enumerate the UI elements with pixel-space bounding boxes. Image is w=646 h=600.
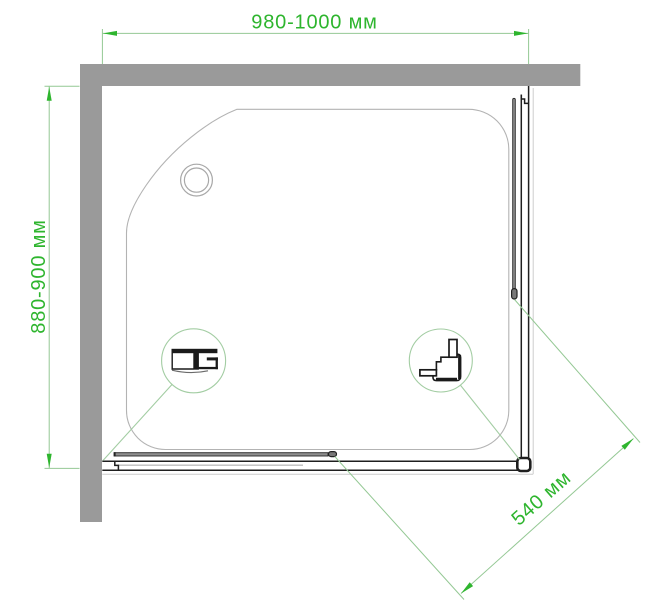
svg-text:880-900 мм: 880-900 мм	[28, 219, 50, 333]
svg-text:980-1000 мм: 980-1000 мм	[251, 12, 377, 34]
